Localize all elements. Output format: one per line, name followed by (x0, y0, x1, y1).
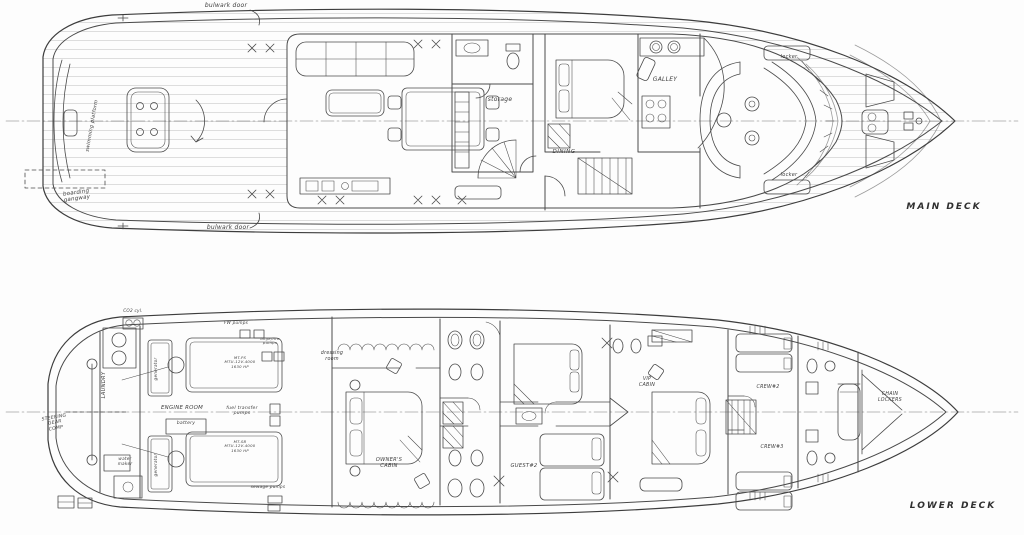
water-maker-label: water maker (108, 457, 142, 467)
locker-bottom-label: locker (770, 173, 808, 179)
crew3-label: CREW#3 (752, 445, 792, 451)
fuel-transfer-pumps-label: fuel transfer pumps (216, 406, 268, 417)
generator-stbd-label: generator (154, 437, 159, 493)
laundry-label: LAUNDRY (101, 361, 107, 409)
main-deck-drawing (6, 9, 1018, 233)
dressing-room-label: dressing room (312, 351, 352, 362)
engine-stbd-label: MT-SB MTU-12V-4000 1630 HP (214, 440, 266, 453)
yacht-deck-plans: bulwark door bulwark door boarding gangw… (0, 0, 1024, 535)
guest2-label: GUEST#2 (502, 463, 546, 469)
vip-cabin-label: VIP CABIN (630, 377, 664, 388)
chain-lockers-label: CHAIN LOCKERS (868, 392, 912, 403)
bilge-fire-pumps-label: bilge/fire pumps (252, 337, 288, 346)
engine-port-label: MT-PS MTU-12V-4000 1630 HP (214, 356, 266, 369)
fw-pumps-label: FW pumps (218, 321, 254, 326)
owners-cabin-label: OWNER'S CABIN (364, 457, 414, 469)
co2-label: CO2 cyl. (118, 309, 148, 314)
crew2-label: CREW#2 (748, 385, 788, 391)
sewage-pumps-label: sewage pumps (240, 485, 296, 490)
generator-port-label: generator (154, 341, 159, 397)
battery-label: battery (168, 421, 204, 426)
galley-label: GALLEY (645, 76, 685, 83)
lower-deck-title: LOWER DECK (900, 501, 1006, 512)
locker-top-label: locker (770, 55, 808, 61)
engine-room-label: ENGINE ROOM (154, 405, 210, 411)
dining-label: DINING (544, 149, 584, 155)
main-deck-title: MAIN DECK (896, 202, 992, 213)
storage-label: storage (478, 96, 522, 103)
bulwark-door-bottom-label: bulwark door (202, 224, 254, 231)
bulwark-door-top-label: bulwark door (200, 2, 252, 9)
